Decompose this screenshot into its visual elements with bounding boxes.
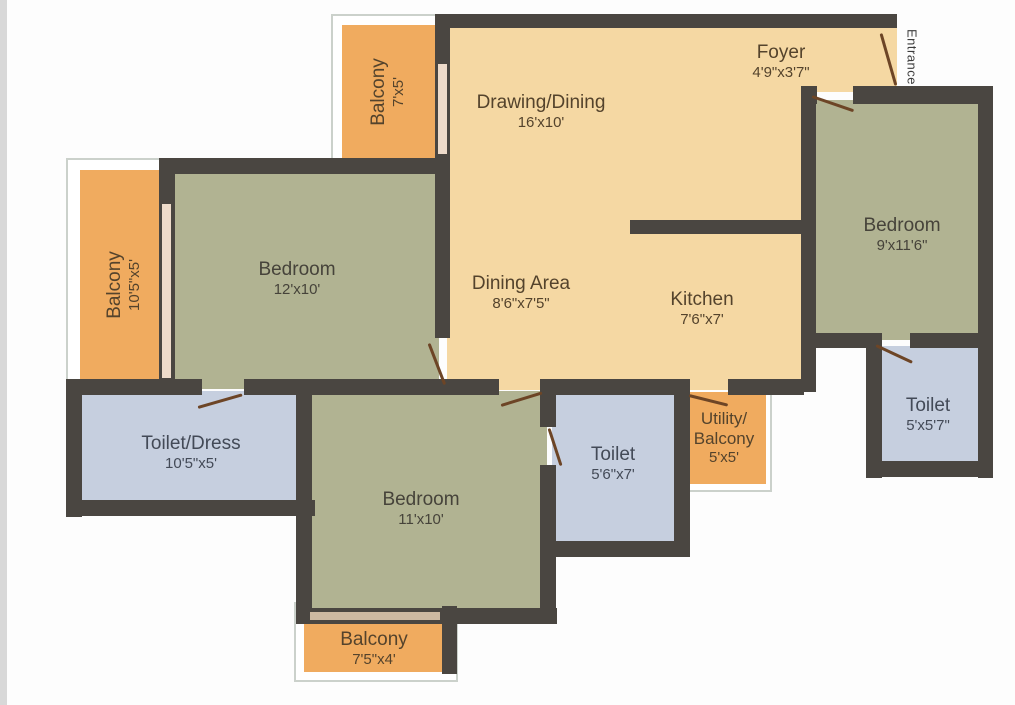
wall (866, 461, 993, 477)
room-label-kitchen: Kitchen 7'6"x7' (670, 289, 733, 329)
entrance-label: Entrance (904, 29, 919, 85)
room-label-utility-balcony: Utility/ Balcony 5'x5' (694, 409, 754, 467)
wall (66, 379, 82, 517)
wall (66, 379, 202, 395)
wall (910, 333, 980, 348)
wall (540, 541, 690, 557)
wall (442, 606, 457, 674)
wall (159, 158, 450, 174)
room-label-balcony-bottom: Balcony 7'5"x4' (340, 629, 408, 669)
wall (540, 379, 556, 427)
wall (866, 333, 882, 478)
room-label-balcony-top-left: Balcony 7'x5' (368, 58, 408, 126)
wall (728, 379, 804, 395)
wall (296, 379, 312, 624)
room-label-bedroom-right: Bedroom 9'x11'6" (863, 215, 940, 255)
wall (66, 500, 315, 516)
room-label-toilet-right: Toilet 5'x5'7" (906, 395, 950, 435)
floor-plan: Balcony 7'x5' Drawing/Dining 16'x10' Foy… (0, 0, 1015, 705)
room-label-balcony-left: Balcony 10'5"x5' (104, 251, 144, 319)
room-label-foyer: Foyer 4'9"x3'7" (752, 42, 809, 82)
room-fill-drawing-dining-kitchen (447, 26, 805, 390)
room-label-bedroom-bottom: Bedroom 11'x10' (382, 489, 459, 529)
wall-kitchen-partition (630, 220, 804, 234)
room-label-toilet-dress: Toilet/Dress 10'5"x5' (141, 433, 240, 473)
room-label-drawing-dining: Drawing/Dining 16'x10' (477, 92, 606, 132)
wall (674, 379, 690, 557)
wall (978, 86, 993, 478)
window (162, 204, 171, 378)
room-label-toilet-middle: Toilet 5'6"x7' (591, 444, 635, 484)
room-label-bedroom-left: Bedroom 12'x10' (258, 259, 335, 299)
room-label-dining-area: Dining Area 8'6"x7'5" (472, 273, 570, 313)
window (438, 64, 447, 154)
wall (435, 14, 450, 338)
wall (853, 86, 993, 104)
window-slider (310, 612, 440, 620)
wall (435, 14, 897, 28)
wall (244, 379, 499, 395)
wall (540, 379, 690, 395)
image-left-edge (0, 0, 7, 705)
